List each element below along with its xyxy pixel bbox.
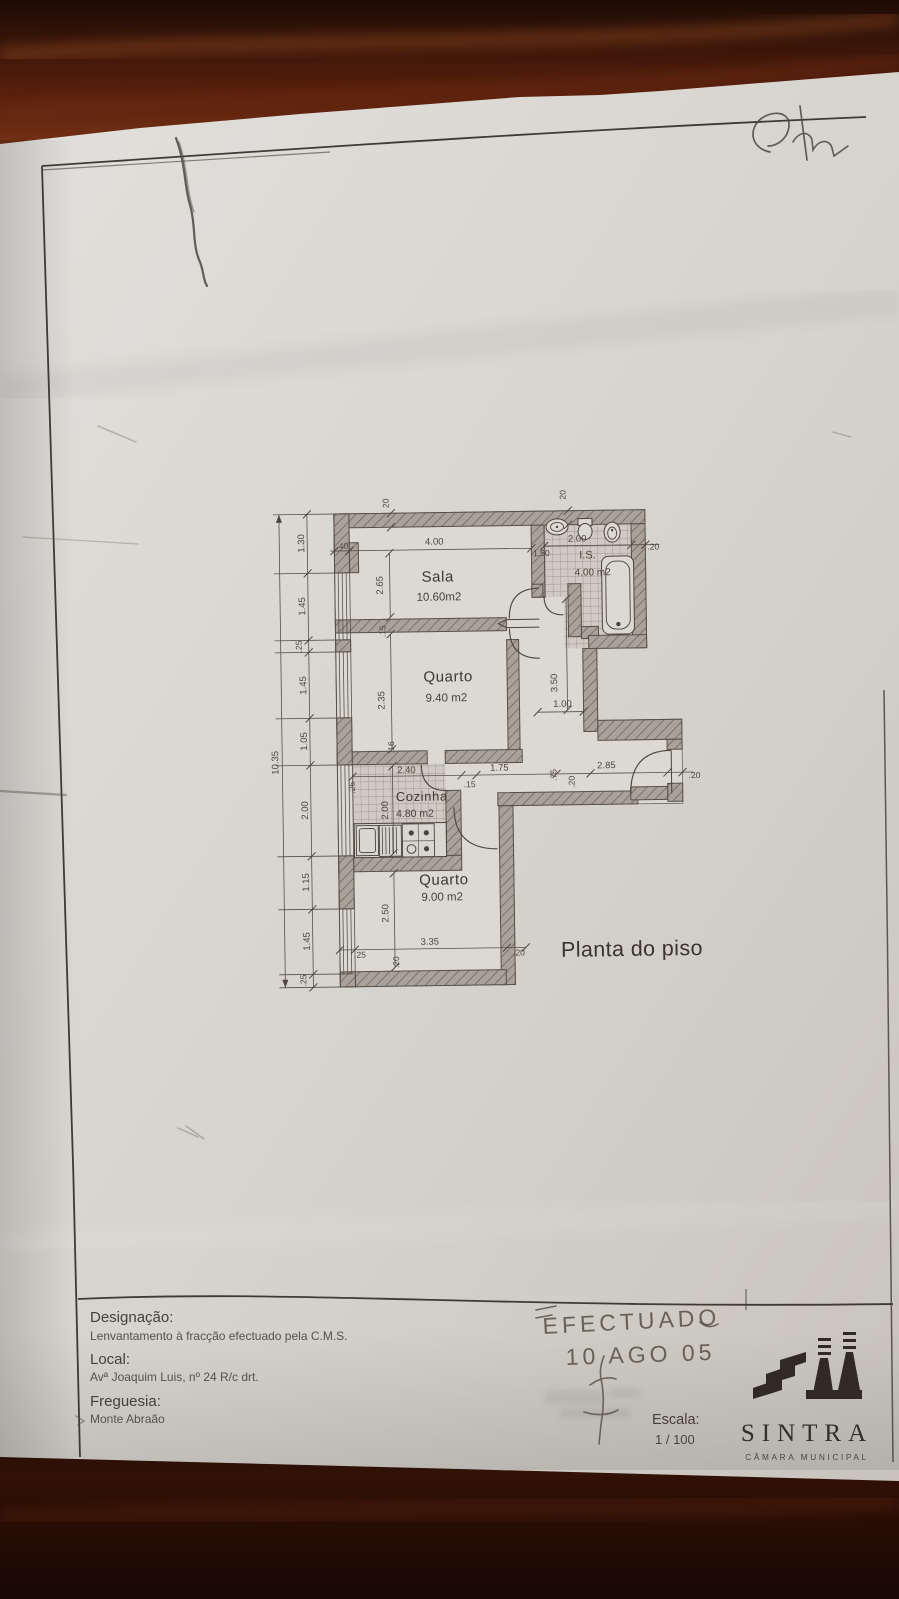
wall-entry-jamb-top bbox=[667, 739, 682, 749]
dim-hall-depth: 3.50 bbox=[549, 674, 560, 693]
dim-chain-8: .25 bbox=[298, 974, 308, 986]
room-label-quarto1: Quarto bbox=[423, 668, 473, 686]
bidet-icon bbox=[604, 522, 620, 542]
wall-right-south bbox=[499, 806, 515, 985]
dim-door-jamb: .15 bbox=[464, 779, 476, 789]
pillar-corner-jog bbox=[349, 543, 358, 573]
dim-cozinha-depth: 2.00 bbox=[380, 801, 391, 820]
dim-chain-5: 2.00 bbox=[300, 801, 311, 820]
pillar-2 bbox=[336, 640, 351, 652]
dim-bath-width: 2.00 bbox=[568, 533, 587, 544]
room-area-cozinha: 4.80 m2 bbox=[396, 808, 434, 821]
pillar-4 bbox=[339, 856, 355, 909]
room-area-quarto2: 9.00 m2 bbox=[421, 891, 463, 904]
wall-kitchen-right bbox=[446, 790, 462, 855]
sintra-logo-name: SINTRA bbox=[741, 1420, 873, 1447]
dim-chain-6: 1.15 bbox=[301, 873, 312, 892]
wall-entry-top bbox=[598, 719, 682, 740]
pillar-3 bbox=[337, 718, 353, 765]
dim-total-left: 10.35 bbox=[270, 751, 281, 775]
dim-wall-top-left: 20 bbox=[381, 498, 391, 508]
dim-chain-1: 1.45 bbox=[297, 597, 308, 616]
dim-wall-quarto-cozinha: .16 bbox=[386, 741, 396, 753]
dim-wall-bath-right: .20 bbox=[647, 541, 659, 551]
wall-sala-quarto-divider bbox=[335, 618, 506, 633]
room-area-quarto1: 9.40 m2 bbox=[426, 692, 468, 705]
plan-title: Planta do piso bbox=[561, 936, 703, 962]
dim-chain-3: 1.45 bbox=[298, 676, 309, 695]
dim-corridor-5: .20 bbox=[689, 770, 701, 780]
dim-wall-sala-quarto: .15 bbox=[377, 625, 387, 637]
dim-quarto2-depth: 2.50 bbox=[380, 904, 391, 923]
freguesia-label: Freguesia: bbox=[90, 1393, 161, 1410]
room-area-sala: 10.60m2 bbox=[417, 591, 462, 604]
dim-sala-depth: 2.65 bbox=[375, 576, 386, 595]
wall-bath-partition-v bbox=[568, 584, 582, 637]
handwriting-line2: 10 AGO 05 bbox=[565, 1339, 716, 1370]
dim-bottom-wall: .20 bbox=[391, 956, 401, 968]
room-area-is: 4.00 m2 bbox=[575, 567, 612, 579]
wall-tub-bottom bbox=[589, 635, 647, 649]
sink-icon bbox=[546, 519, 568, 535]
room-label-sala: Sala bbox=[421, 568, 454, 585]
dim-cozinha-width: 2.40 bbox=[397, 765, 416, 776]
room-label-is: I.S. bbox=[579, 549, 596, 561]
dim-quarto1-depth: 2.35 bbox=[376, 691, 387, 710]
wall-corridor-top-right bbox=[445, 749, 522, 763]
local-label: Local: bbox=[90, 1351, 130, 1368]
wall-hall-left bbox=[507, 639, 521, 762]
local-value: Avª Joaquim Luis, nº 24 R/c drt. bbox=[90, 1370, 259, 1384]
door-leaf-entrance bbox=[671, 750, 672, 793]
freguesia-value: Monte Abraão bbox=[90, 1412, 165, 1426]
dim-corner: .40 bbox=[336, 541, 348, 551]
dim-hall-width: 1.00 bbox=[553, 699, 572, 710]
dim-corridor-2: .75 bbox=[548, 769, 558, 781]
dim-corridor-3: .20 bbox=[567, 775, 577, 787]
wall-hall-right bbox=[583, 648, 598, 731]
dim-chain-2: .25 bbox=[294, 640, 304, 652]
dim-wall-top-right: 20 bbox=[558, 490, 568, 500]
dim-bottom-left: .25 bbox=[354, 950, 366, 960]
dim-sala-width: 4.00 bbox=[425, 536, 444, 547]
room-label-cozinha: Cozinha bbox=[396, 788, 448, 804]
dim-bottom-right: .20 bbox=[513, 947, 525, 957]
dim-quarto2-width: 3.35 bbox=[420, 937, 439, 948]
dim-chain-7: 1.45 bbox=[302, 932, 313, 951]
sintra-logo-sub: CÂMARA MUNICIPAL bbox=[745, 1452, 869, 1462]
wall-bottom bbox=[340, 970, 506, 987]
designacao-value: Lenvantamento à fracção efectuado pela C… bbox=[90, 1329, 348, 1343]
dim-chain-0: 1.30 bbox=[296, 534, 307, 553]
dim-corridor-1: 1.75 bbox=[490, 763, 509, 774]
room-label-quarto2: Quarto bbox=[419, 871, 469, 889]
kitchen-fixtures bbox=[354, 822, 446, 857]
escala-label: Escala: bbox=[652, 1412, 700, 1428]
dim-corridor-4: 2.85 bbox=[597, 760, 616, 771]
wall-entry-jamb-bottom bbox=[668, 783, 683, 801]
dim-bath-inner: 1.50 bbox=[533, 548, 550, 558]
designacao-label: Designação: bbox=[90, 1309, 173, 1326]
dim-chain-4: 1.05 bbox=[299, 732, 310, 751]
wall-corridor-bottom bbox=[498, 791, 638, 806]
wall-bath-stub bbox=[532, 584, 543, 597]
wall-corridor-bottom-step bbox=[631, 786, 668, 800]
escala-value: 1 / 100 bbox=[655, 1432, 695, 1447]
dim-cozinha-wall: .26 bbox=[347, 782, 357, 794]
photo-of-floorplan-document: Sala 10.60m2 Quarto 9.40 m2 Cozinha 4.80… bbox=[0, 0, 899, 1599]
